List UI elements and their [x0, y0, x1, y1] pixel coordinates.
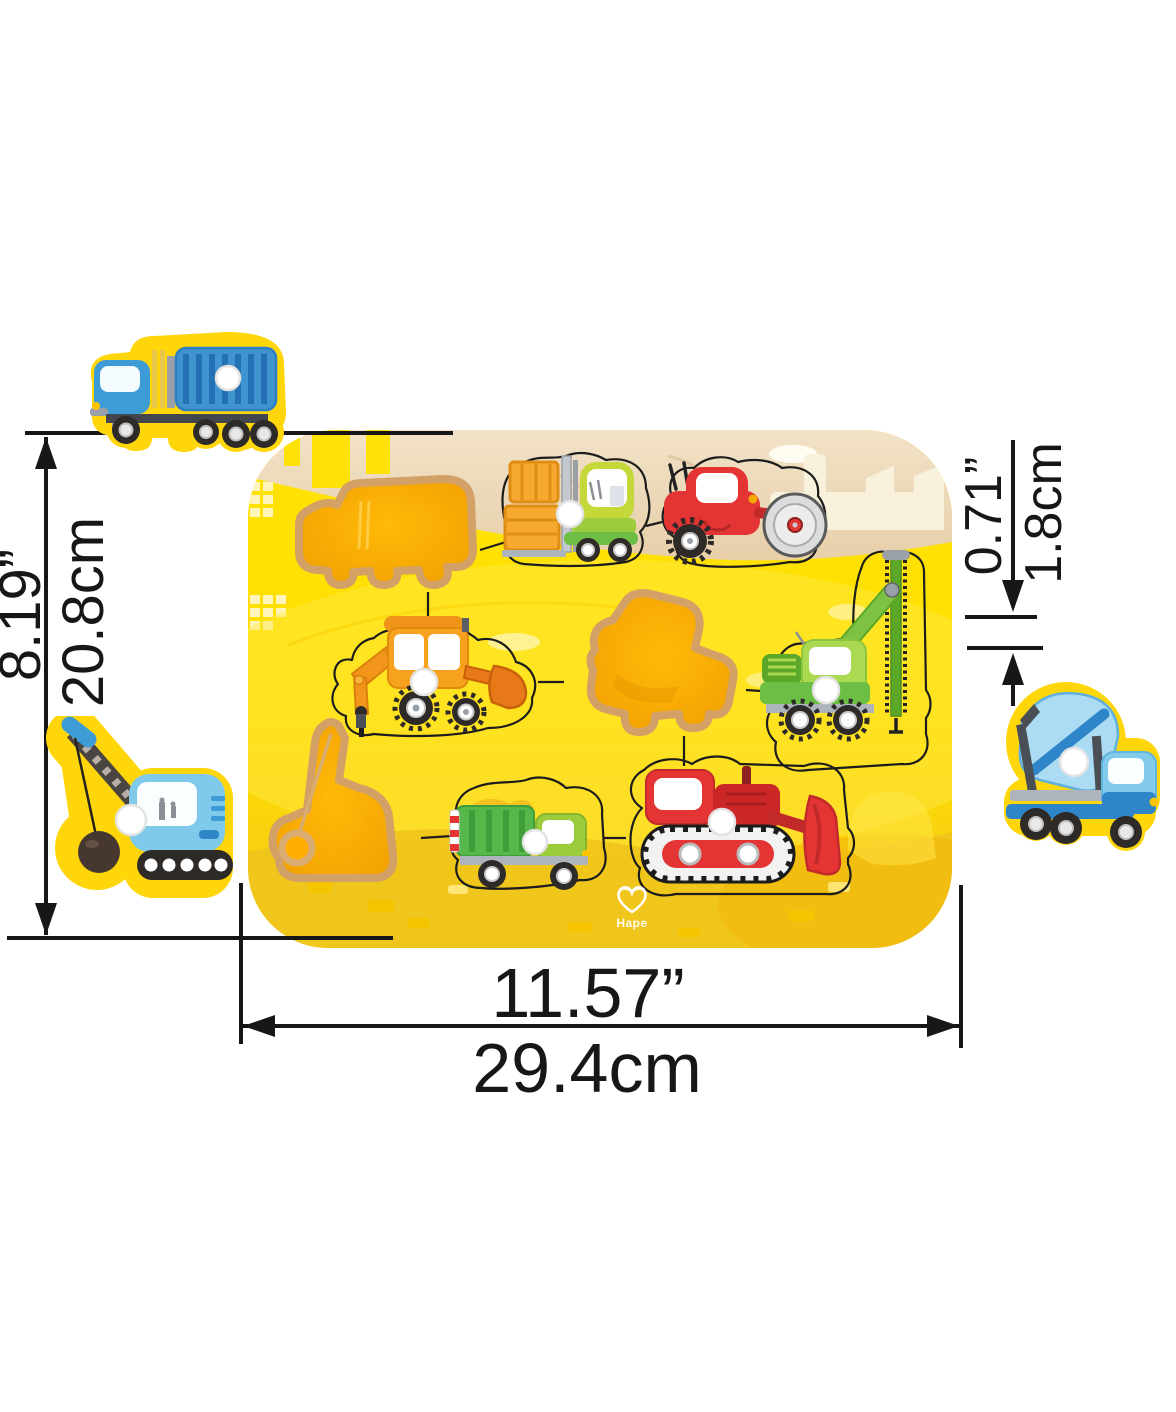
- product-photo: 8.19” 20.8cm 11.57” 29.4cm 0.71” 1.8cm: [0, 0, 1176, 1412]
- truck-exhaust-stacks: [152, 350, 175, 408]
- wrecking-crane-removed-piece[interactable]: [45, 716, 237, 930]
- truck-cab: [90, 360, 150, 416]
- backhoe-loader-piece[interactable]: [328, 612, 538, 738]
- dump-truck-piece[interactable]: [448, 780, 604, 898]
- width-dim-right-tick: [959, 885, 963, 1048]
- truck-peg[interactable]: [216, 366, 240, 390]
- bulldozer-peg[interactable]: [709, 809, 735, 835]
- roller-antennas: [670, 463, 688, 489]
- height-cm-label: 20.8cm: [55, 517, 113, 707]
- thickness-dim-tick2: [967, 646, 1043, 650]
- width-cm-label: 29.4cm: [472, 1033, 702, 1103]
- mixer-cab: [1102, 752, 1159, 814]
- width-dim-arrow-left: [243, 1015, 275, 1037]
- height-dim-arrow-up: [35, 437, 57, 469]
- roller-drum: [764, 494, 826, 556]
- forklift-peg[interactable]: [557, 501, 583, 527]
- crane-peg[interactable]: [116, 805, 146, 835]
- bulldozer-cab: [646, 770, 714, 824]
- width-dim-arrow-right: [927, 1015, 959, 1037]
- width-inches-label: 11.57”: [491, 958, 684, 1028]
- forklift-piece[interactable]: [500, 452, 648, 570]
- hape-heart-leaf-icon: [612, 882, 652, 916]
- thickness-inches-label: 0.71”: [958, 457, 1010, 576]
- roller-body: [664, 467, 760, 535]
- cement-mixer-removed-piece[interactable]: [996, 678, 1164, 854]
- forklift-crates: [505, 462, 559, 550]
- bulldozer-piece[interactable]: [618, 760, 850, 900]
- brand-logo: Hape: [600, 882, 664, 930]
- thickness-dim-arrow-down: [1002, 580, 1024, 612]
- thickness-dim-tick1: [965, 615, 1037, 619]
- backhoe-peg[interactable]: [411, 669, 437, 695]
- height-inches-label: 8.19”: [0, 549, 50, 681]
- pile-driver-crane-piece[interactable]: [746, 548, 936, 776]
- container-truck-removed-piece[interactable]: [78, 328, 290, 452]
- crane-tracks: [137, 850, 233, 880]
- mixer-peg[interactable]: [1060, 748, 1088, 776]
- dump-peg[interactable]: [523, 830, 547, 854]
- dump-bed: [450, 806, 534, 856]
- forklift-fork: [502, 550, 566, 557]
- crane-wrecking-ball: [78, 831, 120, 873]
- backhoe-wheels: [395, 687, 484, 730]
- pile-driver-rail: [882, 550, 910, 732]
- brand-logo-text: Hape: [600, 916, 664, 930]
- thickness-cm-label: 1.8cm: [1018, 442, 1070, 584]
- pile-driver-peg[interactable]: [813, 677, 839, 703]
- height-dim-bottom-tick: [7, 936, 393, 940]
